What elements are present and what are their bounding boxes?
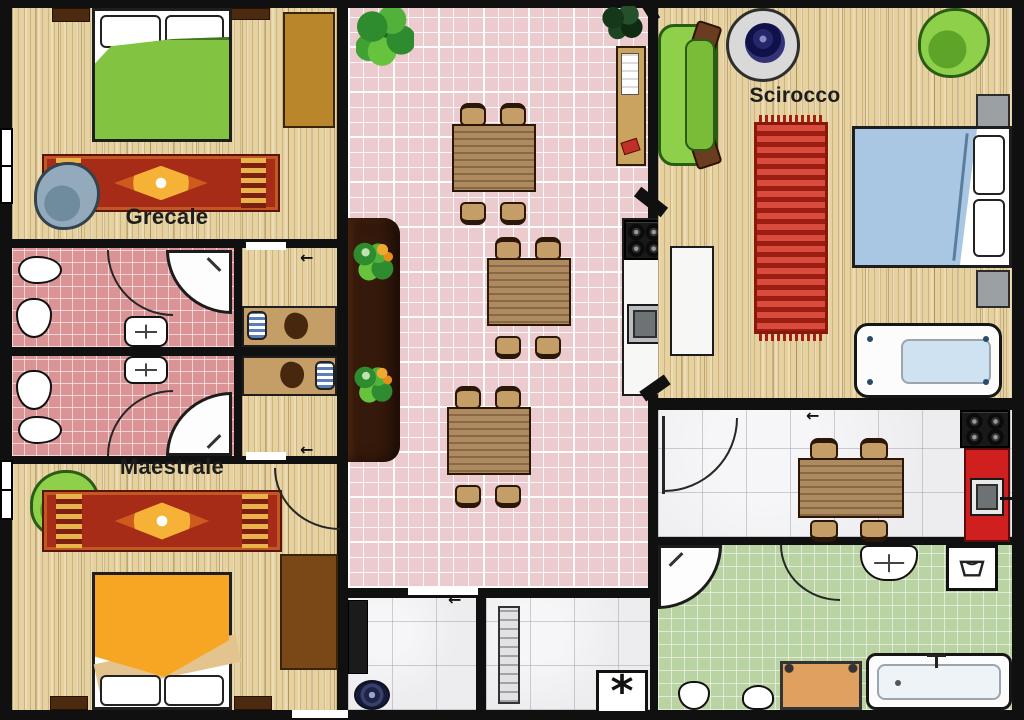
tub-foot xyxy=(983,336,989,342)
hall-right: * xyxy=(486,598,650,710)
chair xyxy=(860,438,888,460)
wardrobe xyxy=(283,12,335,128)
dark-cabinet xyxy=(348,600,368,674)
bathtub xyxy=(854,323,1002,398)
tub-foot xyxy=(867,379,873,385)
door-arc xyxy=(664,418,738,492)
books xyxy=(621,53,639,95)
bathtub-inner xyxy=(901,339,991,384)
striped-rug xyxy=(754,122,828,334)
tub-drain xyxy=(895,680,901,686)
chair xyxy=(495,485,521,508)
room-label: Scirocco xyxy=(720,84,870,110)
dining-set xyxy=(452,103,540,225)
dining-set xyxy=(487,237,575,359)
bookshelf xyxy=(616,46,646,166)
chair xyxy=(535,237,561,260)
door-lintel xyxy=(292,710,348,718)
rug-medallion xyxy=(115,502,209,539)
chair xyxy=(455,386,481,409)
window xyxy=(0,460,13,520)
chair xyxy=(810,438,838,460)
chair xyxy=(460,202,486,225)
sink-basin xyxy=(976,484,999,510)
bed-pillow xyxy=(247,311,267,340)
sofa-seat xyxy=(685,39,715,151)
toilet xyxy=(16,298,52,338)
washing-machine xyxy=(946,545,998,591)
bathtub xyxy=(866,653,1012,710)
counter-plant-icon xyxy=(353,240,395,284)
single-bed xyxy=(242,306,337,347)
bed-pillow xyxy=(973,199,1005,257)
door-arc xyxy=(107,390,173,456)
bath-mat xyxy=(780,661,862,710)
kitchen-room: ← xyxy=(658,410,1012,537)
entry-arrow-icon: ← xyxy=(300,248,313,267)
door-lintel xyxy=(246,242,286,250)
bed-pillow xyxy=(164,675,224,706)
dining-hall xyxy=(348,8,648,588)
oriental-rug xyxy=(42,490,282,552)
green-bathroom xyxy=(658,545,1012,710)
rug-medallion xyxy=(114,166,208,201)
bidet xyxy=(742,685,774,710)
kitchen-dining-set xyxy=(798,438,908,542)
chair xyxy=(500,103,526,126)
corner-shower xyxy=(658,545,722,609)
bed-pillow xyxy=(100,675,161,706)
entry-arrow-icon: ← xyxy=(806,406,819,425)
entry-arrow-icon: ← xyxy=(300,440,313,459)
tub-tap xyxy=(927,654,946,657)
round-rug-center xyxy=(745,23,785,63)
nightstand xyxy=(230,8,270,20)
single-bed xyxy=(242,356,337,396)
asterisk-icon: * xyxy=(610,674,633,709)
duvet xyxy=(95,37,229,139)
sideboard xyxy=(670,246,714,356)
counter-plant-icon xyxy=(354,364,394,406)
hall-left xyxy=(348,598,476,710)
bathroom-1 xyxy=(12,248,234,347)
chair xyxy=(810,520,838,542)
nightstand xyxy=(976,270,1010,308)
nightstand xyxy=(50,696,88,710)
book-red xyxy=(620,138,640,156)
door-lintel xyxy=(408,587,478,595)
tub-foot xyxy=(983,379,989,385)
stove xyxy=(960,410,1010,448)
grecale-room: Grecale xyxy=(12,8,337,239)
sink-basin xyxy=(633,310,657,337)
rug-end-band xyxy=(242,494,268,548)
red-counter xyxy=(964,448,1010,542)
corner-shower xyxy=(166,250,232,314)
door-arc xyxy=(274,468,340,530)
kitchen-sink xyxy=(970,478,1004,516)
room-label: Grecale xyxy=(87,204,247,230)
armchair-green xyxy=(918,8,990,78)
nightstand xyxy=(976,94,1010,130)
double-bed-green xyxy=(92,8,232,142)
dining-table xyxy=(452,124,536,192)
chair xyxy=(460,103,486,126)
clothes xyxy=(281,310,311,341)
washbasin xyxy=(124,316,168,347)
corner-shower xyxy=(166,392,232,456)
bed-pillow xyxy=(973,135,1005,195)
double-bed-blue xyxy=(852,126,1012,268)
chair xyxy=(500,202,526,225)
chair xyxy=(535,336,561,359)
bathroom-2 xyxy=(12,356,234,456)
bidet xyxy=(18,256,62,284)
rug-end-band xyxy=(56,494,82,548)
bed-pillow xyxy=(315,361,335,390)
radiator xyxy=(498,606,520,704)
window xyxy=(0,128,13,204)
floor-plan: Grecale ← ← Maestrale xyxy=(0,0,1024,720)
dining-set xyxy=(447,386,535,508)
vent-appliance: * xyxy=(596,670,648,714)
door-arc xyxy=(780,545,840,601)
bar-counter xyxy=(348,218,400,462)
washbasin xyxy=(124,356,168,384)
chair xyxy=(495,386,521,409)
round-doormat xyxy=(354,680,390,710)
room-label: Maestrale xyxy=(82,454,262,480)
double-bed-orange xyxy=(92,572,232,710)
toilet xyxy=(16,370,52,410)
niche-room-1: ← xyxy=(242,248,337,347)
door-lintel xyxy=(246,452,286,460)
round-rug xyxy=(726,8,800,82)
dining-table xyxy=(487,258,571,326)
rug-end-band xyxy=(241,158,267,208)
tub-foot xyxy=(867,336,873,342)
maestrale-room: Maestrale xyxy=(12,464,337,710)
bidet xyxy=(18,416,62,444)
clothes xyxy=(277,359,307,390)
chair xyxy=(455,485,481,508)
wardrobe xyxy=(280,554,338,670)
sink-tap xyxy=(1000,497,1014,500)
dining-table xyxy=(447,407,531,475)
potted-plant-icon xyxy=(356,8,414,66)
kitchen-table xyxy=(798,458,904,518)
toilet xyxy=(678,681,710,710)
chair xyxy=(860,520,888,542)
sofa-green xyxy=(658,24,718,166)
door-arc xyxy=(107,250,173,316)
nightstand xyxy=(234,696,272,710)
entry-arrow-icon: ← xyxy=(448,590,461,609)
laundry-basin-icon xyxy=(957,557,987,579)
chair xyxy=(495,336,521,359)
washbasin xyxy=(860,545,918,581)
niche-room-2: ← xyxy=(242,356,337,456)
scirocco-room: Scirocco xyxy=(658,8,1012,398)
potted-plant-dark-icon xyxy=(600,6,644,40)
nightstand xyxy=(52,8,90,22)
chair xyxy=(495,237,521,260)
